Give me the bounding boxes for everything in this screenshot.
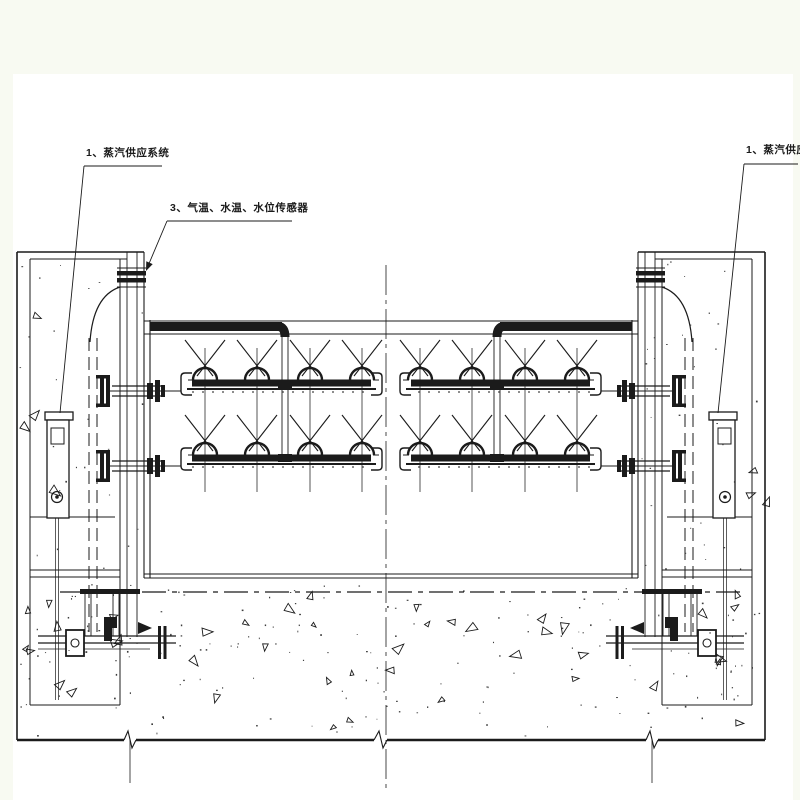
drawing-canvas: 1、蒸汽供应系统 3、气温、水温、水位传感器 1、蒸汽供应系统 bbox=[0, 0, 800, 800]
engineering-section-drawing: 1、蒸汽供应系统 3、气温、水温、水位传感器 1、蒸汽供应系统 bbox=[0, 0, 800, 800]
label-steam-supply-system-left: 1、蒸汽供应系统 bbox=[86, 146, 169, 159]
label-temperature-water-level-sensors: 3、气温、水温、水位传感器 bbox=[170, 201, 308, 214]
paper-area bbox=[13, 74, 793, 800]
label-steam-supply-system-right: 1、蒸汽供应系统 bbox=[746, 143, 800, 156]
